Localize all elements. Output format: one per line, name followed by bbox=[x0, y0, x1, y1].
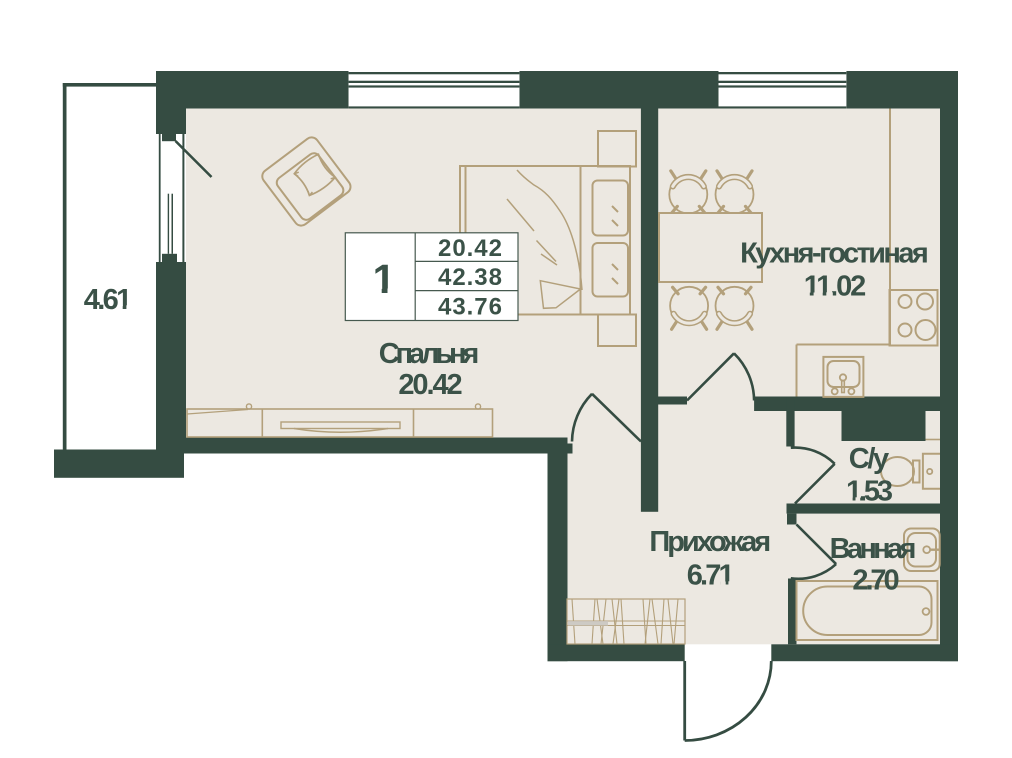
svg-text:4.61: 4.61 bbox=[84, 284, 133, 316]
svg-text:1.53: 1.53 bbox=[846, 476, 893, 508]
svg-text:42.38: 42.38 bbox=[438, 264, 502, 291]
svg-text:20.42: 20.42 bbox=[438, 235, 502, 262]
svg-text:Спальня: Спальня bbox=[379, 338, 480, 370]
svg-text:Ванная: Ванная bbox=[830, 533, 917, 565]
svg-text:2.70: 2.70 bbox=[852, 565, 899, 597]
svg-text:11.02: 11.02 bbox=[804, 271, 867, 303]
svg-text:43.76: 43.76 bbox=[438, 293, 502, 320]
svg-text:С/у: С/у bbox=[849, 443, 889, 475]
svg-text:Прихожая: Прихожая bbox=[649, 526, 771, 558]
svg-text:6.71: 6.71 bbox=[687, 560, 735, 592]
svg-text:1: 1 bbox=[373, 256, 396, 302]
svg-text:Кухня-гостиная: Кухня-гостиная bbox=[740, 238, 929, 270]
svg-text:20.42: 20.42 bbox=[398, 369, 462, 401]
